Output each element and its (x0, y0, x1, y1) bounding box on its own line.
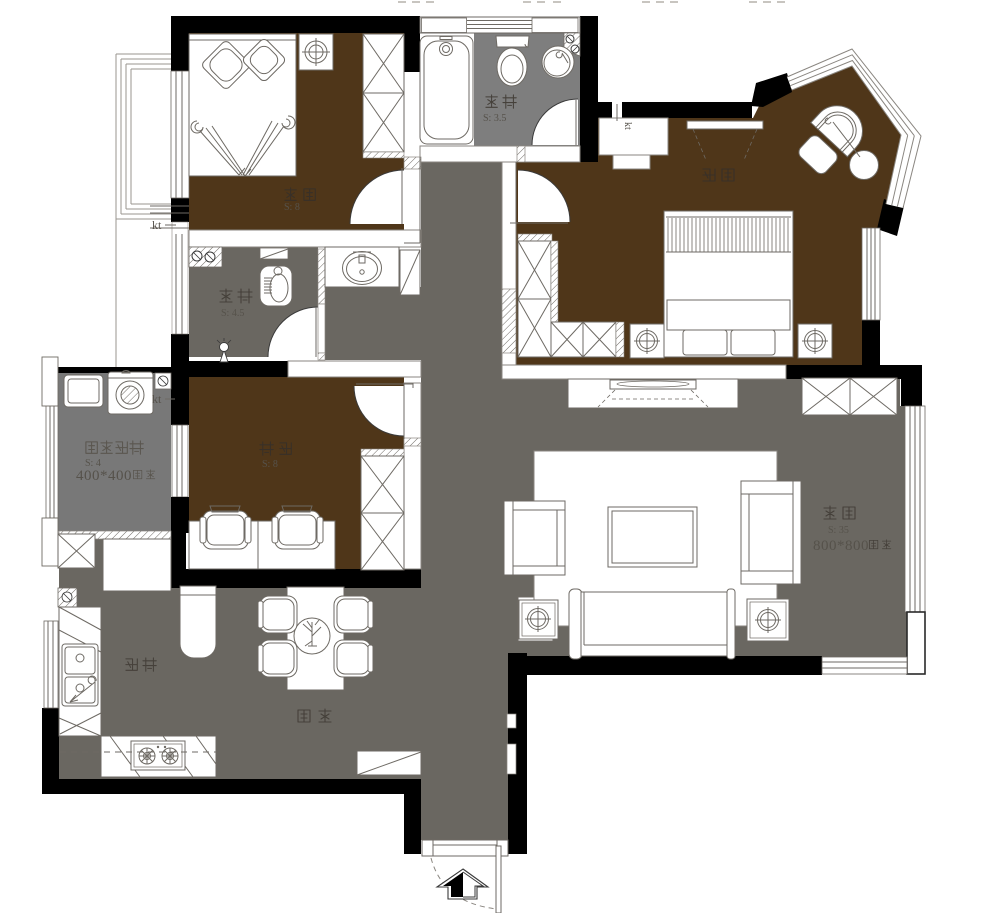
svg-text:800*800: 800*800 (813, 538, 869, 554)
svg-text:S: 8: S: 8 (284, 202, 300, 213)
svg-text:kt: kt (152, 218, 162, 232)
svg-text:S: 3.5: S: 3.5 (483, 113, 506, 124)
svg-text:S: 8: S: 8 (262, 459, 278, 470)
svg-text:S: 4.5: S: 4.5 (221, 308, 244, 319)
svg-text:S: 35: S: 35 (828, 525, 849, 536)
svg-text:kt: kt (152, 392, 162, 406)
svg-text:kt: kt (622, 122, 633, 130)
svg-text:400*400: 400*400 (76, 468, 132, 484)
